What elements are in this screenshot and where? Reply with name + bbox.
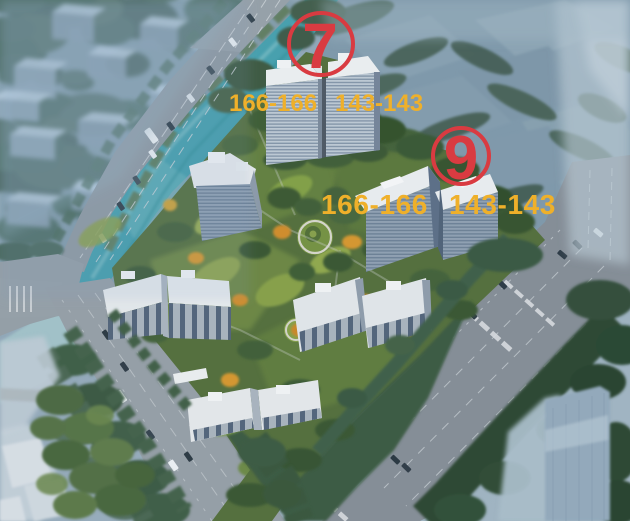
svg-text:7: 7 [302,10,338,82]
svg-text:143-143: 143-143 [335,90,423,117]
svg-text:166-166: 166-166 [229,90,317,117]
svg-text:143-143: 143-143 [449,189,556,220]
svg-text:9: 9 [444,124,478,193]
svg-text:166-166: 166-166 [321,189,428,220]
